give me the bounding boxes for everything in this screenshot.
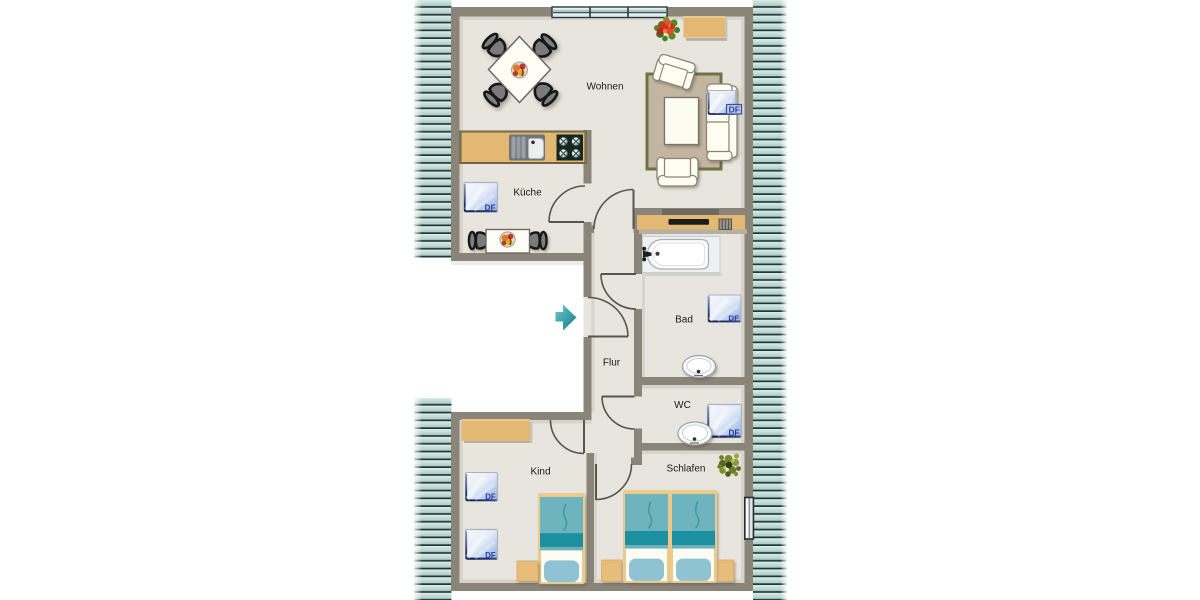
svg-text:Bad: Bad: [675, 315, 693, 326]
svg-text:WC: WC: [674, 400, 691, 411]
svg-text:DF: DF: [729, 105, 740, 115]
svg-text:Schlafen: Schlafen: [667, 464, 706, 475]
svg-text:Wohnen: Wohnen: [586, 82, 623, 93]
svg-text:Küche: Küche: [513, 188, 542, 199]
svg-text:Flur: Flur: [603, 358, 621, 369]
svg-text:Kind: Kind: [530, 467, 550, 478]
